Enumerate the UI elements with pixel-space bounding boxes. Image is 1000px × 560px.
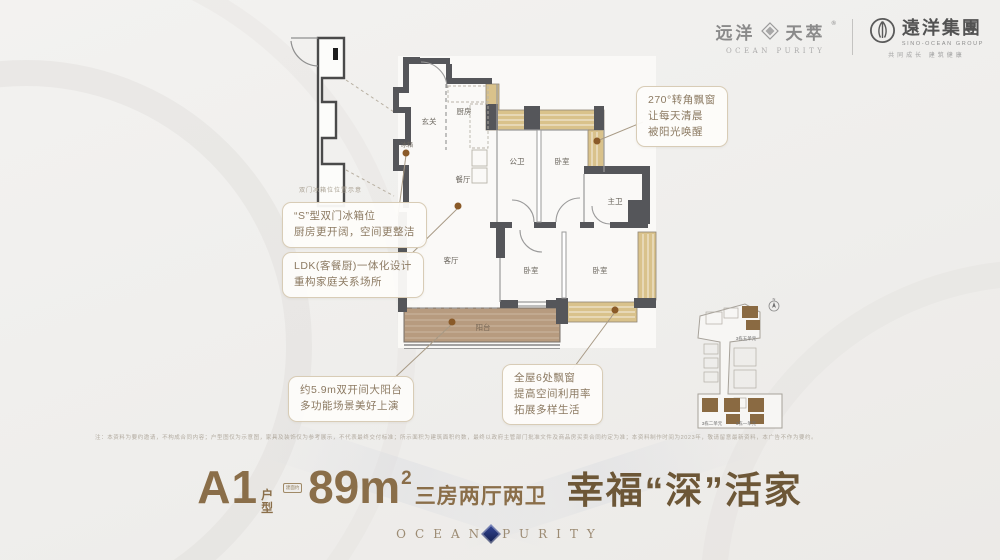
north-compass-icon: N xyxy=(769,297,779,312)
fridge-nook-detail xyxy=(291,38,394,206)
slogan: 幸福“深”活家 xyxy=(567,460,803,514)
area-value: 89m xyxy=(308,460,400,514)
headline: A1 户 型 建面约 89m 2 三房两厅两卫 幸福“深”活家 xyxy=(0,460,1000,519)
partition-walls xyxy=(562,232,566,298)
area-tag-badge: 建面约 xyxy=(283,483,302,493)
site-plan: 3栋五单元 3栋二单元 3栋一单元 N xyxy=(698,297,782,429)
callout-fridge: “S”型双门冰箱位 厨房更开阔，空间更整洁 xyxy=(282,202,427,248)
svg-text:N: N xyxy=(773,297,776,302)
fridge-note: 双门冰箱位位置示意 xyxy=(299,185,362,194)
partition-walls xyxy=(537,130,541,222)
footer-logo: OCEAN PURITY xyxy=(0,527,1000,541)
room-label: 卧室 xyxy=(555,156,570,166)
area-superscript: 2 xyxy=(401,468,412,490)
room-label: 厨房 xyxy=(457,106,472,116)
callout-line: 厨房更开阔，空间更整洁 xyxy=(294,225,415,241)
callout-line: 拓展多样生活 xyxy=(514,403,591,419)
callout-corner-window: 270°转角飘窗 让每天清晨 被阳光唤醒 xyxy=(636,86,728,147)
room-label: 阳台 xyxy=(476,322,491,332)
poster: 远洋 天萃 ® OCEAN PURITY 遠洋集團 SINO-OCEAN GRO xyxy=(0,0,1000,560)
callout-line: LDK(客餐厨)一体化设计 xyxy=(294,259,412,275)
room-count: 三房两厅两卫 xyxy=(415,480,547,510)
callout-line: 提高空间利用率 xyxy=(514,387,591,403)
unit-type-stack: 户 型 xyxy=(261,489,273,515)
callout-balcony: 约5.9m双开间大阳台 多功能场景美好上演 xyxy=(288,376,414,422)
site-plan-label: 3栋一单元 xyxy=(736,420,757,427)
room-label: 卧室 xyxy=(593,265,608,275)
room-label: 主卫 xyxy=(608,196,623,206)
callout-line: 约5.9m双开间大阳台 xyxy=(300,383,402,399)
unit-type-bottom: 型 xyxy=(261,502,273,515)
callout-line: 270°转角飘窗 xyxy=(648,93,716,109)
footer-word-right: PURITY xyxy=(502,527,604,541)
callout-windows: 全屋6处飘窗 提高空间利用率 拓展多样生活 xyxy=(502,364,603,425)
callout-line: 全屋6处飘窗 xyxy=(514,371,591,387)
callout-line: “S”型双门冰箱位 xyxy=(294,209,415,225)
callout-line: 多功能场景美好上演 xyxy=(300,399,402,415)
fridge-label: 冰箱 xyxy=(401,141,413,149)
callout-line: 让每天清晨 xyxy=(648,109,716,125)
footer-word-left: OCEAN xyxy=(396,527,488,541)
room-label: 玄关 xyxy=(422,116,437,126)
disclaimer-text: 注：本资料为要约邀请，不构成合同内容；户型图仅为示意图，家具及装饰仅为参考展示，… xyxy=(95,433,907,441)
site-plan-label: 3栋二单元 xyxy=(702,420,723,427)
callout-line: 重构家庭关系场所 xyxy=(294,275,412,291)
callout-ldk: LDK(客餐厨)一体化设计 重构家庭关系场所 xyxy=(282,252,424,298)
unit-name: A1 xyxy=(197,460,258,514)
room-label: 卧室 xyxy=(524,265,539,275)
callout-line: 被阳光唤醒 xyxy=(648,125,716,141)
room-label: 客厅 xyxy=(444,255,459,265)
site-plan-label: 3栋五单元 xyxy=(736,335,757,342)
room-label: 餐厅 xyxy=(456,175,471,184)
room-label: 公卫 xyxy=(510,157,525,166)
